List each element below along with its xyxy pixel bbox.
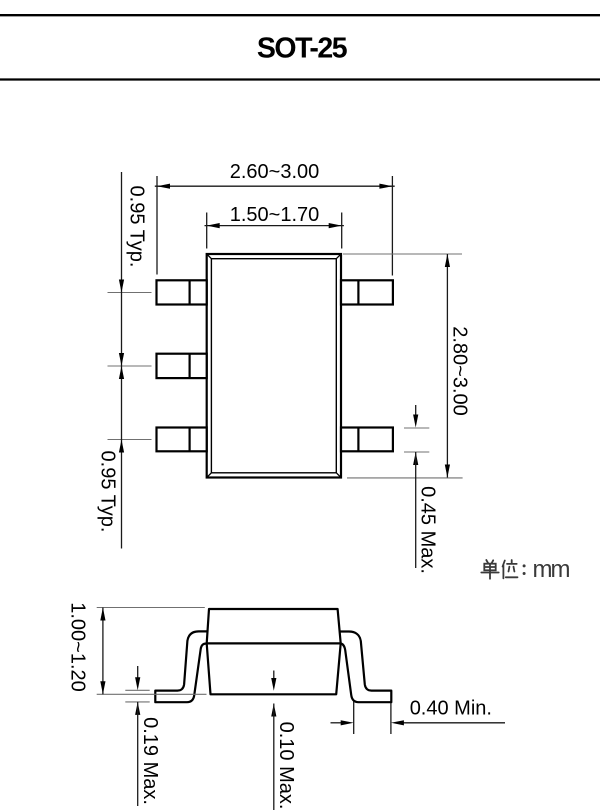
svg-text:0.45 Max.: 0.45 Max. (417, 486, 439, 574)
svg-text:1.50~1.70: 1.50~1.70 (230, 204, 320, 226)
svg-text:mm: mm (533, 556, 570, 583)
svg-text:2.80~3.00: 2.80~3.00 (449, 326, 471, 416)
svg-text:2.60~3.00: 2.60~3.00 (230, 161, 320, 183)
svg-text:SOT-25: SOT-25 (257, 33, 348, 65)
svg-text:0.40 Min.: 0.40 Min. (410, 697, 492, 719)
svg-text:0.95 Typ.: 0.95 Typ. (96, 451, 118, 533)
svg-text:0.95 Typ.: 0.95 Typ. (126, 186, 148, 268)
svg-text:1.00~1.20: 1.00~1.20 (67, 602, 89, 692)
svg-text:0.19 Max.: 0.19 Max. (139, 717, 161, 805)
svg-text:0.10 Max.: 0.10 Max. (275, 722, 297, 810)
